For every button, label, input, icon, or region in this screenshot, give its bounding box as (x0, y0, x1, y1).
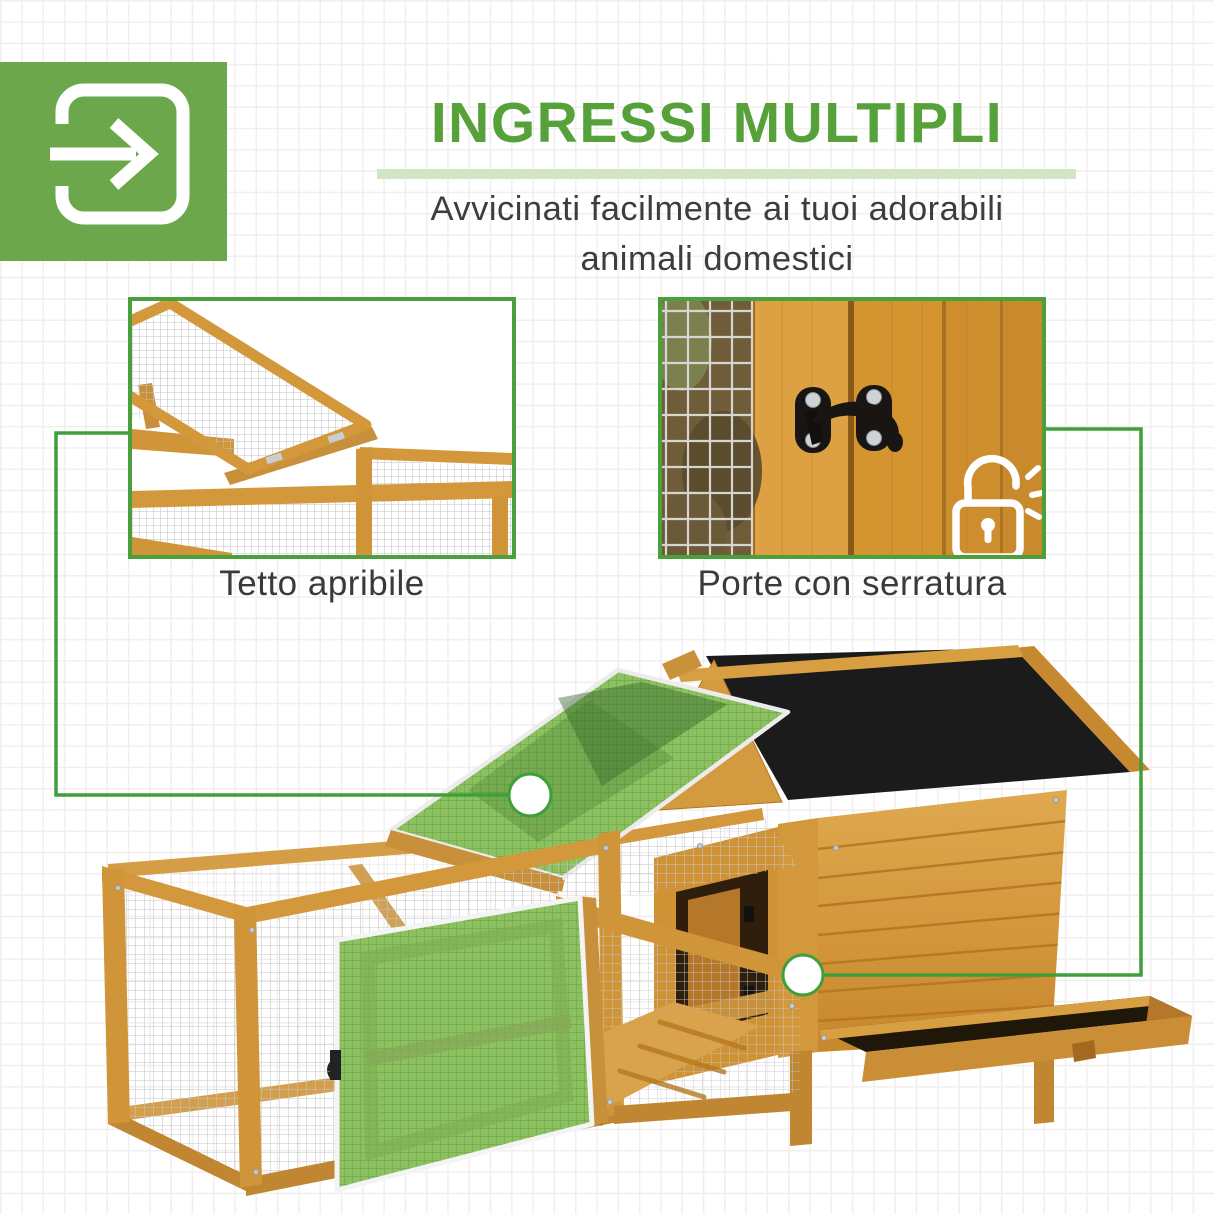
feature-photo-doors (658, 297, 1046, 559)
page-canvas: INGRESSI MULTIPLI Avvicinati facilmente … (0, 0, 1214, 1214)
feature-photo-roof (128, 297, 516, 559)
open-roof-photo (132, 301, 512, 555)
open-mesh-door (330, 896, 608, 1190)
door-latch-photo (662, 301, 1042, 555)
product-photo (0, 0, 1214, 1214)
